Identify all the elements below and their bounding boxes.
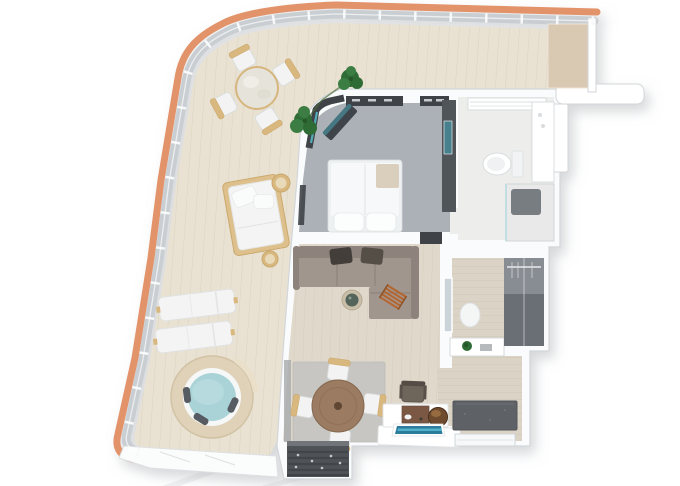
bed-pillow-left — [334, 213, 364, 231]
side-stool-south — [262, 251, 278, 267]
sofa-pillow-2 — [360, 247, 384, 265]
bar-cabinet — [402, 406, 429, 423]
round-side-table — [342, 290, 362, 310]
entry-hall — [453, 401, 517, 446]
counter-tray — [480, 344, 492, 351]
dining-chair-north — [326, 358, 351, 382]
tv-screen — [392, 424, 445, 436]
double-bed — [328, 160, 402, 232]
doorway-bedroom-living — [420, 232, 442, 244]
closet-unit — [504, 258, 544, 346]
bed-pillow-right — [366, 213, 396, 231]
cabinet-bowl — [405, 415, 412, 420]
entry-vestibule — [287, 441, 349, 477]
side-step-ledge — [552, 104, 568, 172]
sofa-pillow-1 — [329, 247, 353, 266]
bathroom-counter — [532, 102, 554, 182]
dressing-stool — [460, 303, 480, 327]
floor-plan-rendering — [0, 0, 680, 486]
bed-throw — [376, 164, 399, 188]
west-wall-shadow — [284, 360, 291, 442]
mirror-panel — [444, 278, 452, 332]
partition-post — [588, 18, 596, 92]
round-patio-table — [236, 67, 278, 109]
round-dining-table — [312, 380, 364, 432]
desk-chair — [399, 381, 427, 403]
shower-tray — [511, 189, 541, 215]
floor-plan-page — [0, 0, 680, 486]
dressing-counter — [450, 338, 504, 356]
door-mat — [453, 401, 517, 430]
tv-wall-unit — [442, 100, 456, 212]
shower — [506, 184, 554, 241]
side-stool-north — [272, 174, 290, 192]
privacy-partition — [548, 24, 590, 88]
dining-area — [284, 358, 386, 452]
bedroom-tv-panel — [444, 121, 452, 154]
toilet — [483, 151, 523, 177]
